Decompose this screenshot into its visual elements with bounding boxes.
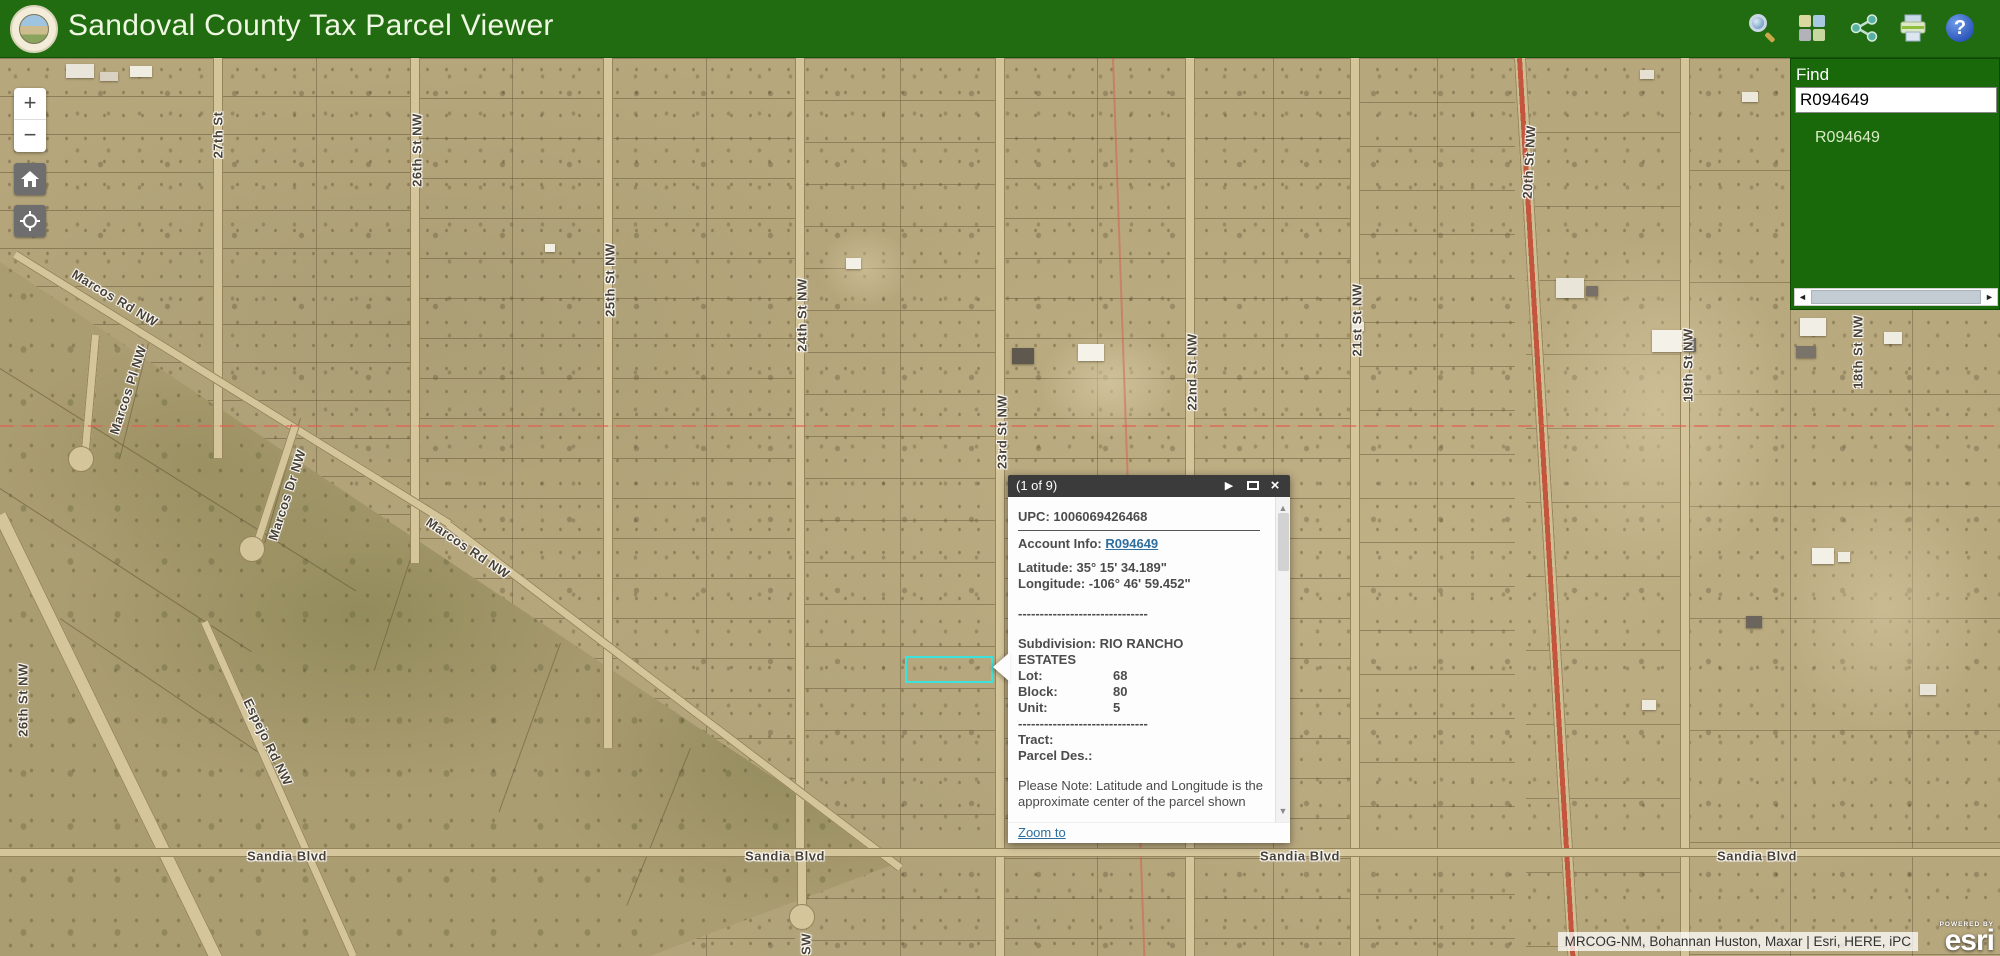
- app-window: 27th St26th St NW25th St NW24th St NW23r…: [0, 0, 2000, 956]
- subdivision-value: Subdivision: RIO RANCHO ESTATES: [1018, 636, 1223, 668]
- road-19th-st: [1680, 58, 1690, 956]
- street-label: Sandia Blvd: [745, 849, 825, 864]
- popup-footer: Zoom to: [1008, 822, 1290, 843]
- maximize-icon: [1247, 481, 1259, 490]
- account-info-row: Account Info: R094649: [1018, 536, 1268, 552]
- street-label: 19th St NW: [1681, 328, 1696, 402]
- building: [1640, 70, 1654, 79]
- unit-row: Unit:5: [1018, 700, 1268, 716]
- scroll-left-arrow[interactable]: ◄: [1795, 289, 1810, 305]
- building: [1796, 346, 1816, 358]
- street-label: 27th St: [211, 112, 226, 159]
- block-label: Block:: [1018, 684, 1113, 700]
- unit-label: Unit:: [1018, 700, 1113, 716]
- cul-de-sac: [239, 536, 265, 562]
- street-label: 23rd St NW: [995, 395, 1010, 469]
- building: [130, 66, 152, 77]
- parcel-line: [900, 58, 901, 956]
- building: [1078, 344, 1104, 361]
- cleared-lot: [1040, 328, 1180, 438]
- zoom-in-button[interactable]: +: [14, 88, 46, 120]
- building: [545, 244, 555, 252]
- locate-icon: [20, 211, 40, 231]
- esri-logo: POWERED BY esri: [1940, 921, 1994, 954]
- scroll-down-arrow[interactable]: ▼: [1276, 803, 1290, 819]
- road-24th-st: [795, 58, 805, 856]
- share-icon[interactable]: [1849, 13, 1879, 43]
- find-result-item[interactable]: R094649: [1815, 129, 1999, 147]
- basemap-gallery-icon[interactable]: [1797, 13, 1827, 43]
- tract-label: Tract:: [1018, 732, 1268, 748]
- next-feature-button[interactable]: ▶: [1220, 475, 1238, 497]
- app-header: Sandoval County Tax Parcel Viewer: [0, 0, 2000, 58]
- print-icon[interactable]: [1898, 13, 1928, 43]
- map-canvas[interactable]: 27th St26th St NW25th St NW24th St NW23r…: [0, 58, 2000, 956]
- building: [846, 258, 861, 269]
- search-icon[interactable]: [1748, 13, 1778, 43]
- building: [1012, 348, 1034, 364]
- zoom-to-link[interactable]: Zoom to: [1018, 825, 1066, 841]
- parcel-line: [1437, 58, 1438, 956]
- building: [1800, 318, 1826, 336]
- esri-brand-text: esri: [1940, 928, 1994, 954]
- street-label: Sandia Blvd: [1260, 849, 1340, 864]
- cleared-lot: [1780, 478, 1990, 738]
- parcel-info-popup: (1 of 9) ▶ × UPC: 1006069426468 Account …: [1008, 475, 1290, 843]
- account-info-label: Account Info:: [1018, 536, 1105, 551]
- street-label: SW: [799, 933, 814, 955]
- block-value: 80: [1113, 684, 1127, 700]
- help-icon[interactable]: ?: [1945, 13, 1975, 43]
- building: [1920, 684, 1936, 695]
- maximize-button[interactable]: [1244, 475, 1262, 497]
- close-button[interactable]: ×: [1266, 475, 1284, 497]
- block-row: Block:80: [1018, 684, 1268, 700]
- find-panel: Find R094649 ◄ ►: [1790, 58, 2000, 310]
- account-info-link[interactable]: R094649: [1105, 536, 1158, 551]
- building: [66, 64, 94, 78]
- unit-value: 5: [1113, 700, 1120, 716]
- scrollbar-thumb[interactable]: [1278, 513, 1289, 571]
- street-label: 18th St NW: [1851, 315, 1866, 389]
- separator-text: ------------------------------: [1018, 716, 1268, 732]
- road-23rd-st: [995, 58, 1005, 956]
- building: [1586, 286, 1598, 296]
- latitude-value: Latitude: 35° 15' 34.189": [1018, 560, 1268, 576]
- popup-header[interactable]: (1 of 9) ▶ ×: [1008, 475, 1290, 497]
- map-attribution: MRCOG-NM, Bohannan Huston, Maxar | Esri,…: [1558, 932, 1918, 951]
- zoom-control: + −: [14, 88, 46, 152]
- street-label: 22nd St NW: [1185, 333, 1200, 410]
- divider: [1018, 530, 1260, 531]
- separator-text: ------------------------------: [1018, 606, 1268, 622]
- parcel-des-label: Parcel Des.:: [1018, 748, 1268, 764]
- building: [1642, 700, 1656, 710]
- find-input[interactable]: [1795, 87, 1997, 113]
- building: [1652, 330, 1682, 352]
- zoom-out-button[interactable]: −: [14, 120, 46, 152]
- cul-de-sac: [789, 904, 815, 930]
- road-21st-st: [1350, 58, 1360, 956]
- street-label: Sandia Blvd: [1717, 849, 1797, 864]
- street-label: 25th St NW: [603, 243, 618, 317]
- longitude-value: Longitude: -106° 46' 59.452": [1018, 576, 1268, 592]
- lot-row: Lot:68: [1018, 668, 1268, 684]
- street-label: 21st St NW: [1350, 284, 1365, 357]
- find-label: Find: [1796, 65, 1999, 85]
- locate-button[interactable]: [14, 205, 46, 237]
- building: [1746, 616, 1762, 628]
- sandoval-county-seal-logo: [10, 5, 58, 53]
- building: [1838, 552, 1850, 562]
- popup-pointer: [993, 652, 1010, 682]
- upc-value: UPC: 1006069426468: [1018, 509, 1268, 525]
- lot-value: 68: [1113, 668, 1127, 684]
- scroll-right-arrow[interactable]: ►: [1982, 289, 1997, 305]
- building: [1812, 548, 1834, 564]
- home-icon: [21, 171, 39, 187]
- selected-parcel-highlight[interactable]: [905, 656, 993, 683]
- home-button[interactable]: [14, 163, 46, 195]
- street-label: 24th St NW: [795, 278, 810, 352]
- street-label: Sandia Blvd: [247, 849, 327, 864]
- find-horizontal-scrollbar: ◄ ►: [1794, 288, 1998, 306]
- street-label: 26th St NW: [410, 113, 425, 187]
- popup-body: UPC: 1006069426468 Account Info: R094649…: [1008, 497, 1290, 843]
- building: [1742, 92, 1758, 102]
- scrollbar-thumb[interactable]: [1811, 290, 1981, 304]
- street-label: 26th St NW: [16, 663, 31, 737]
- page-title: Sandoval County Tax Parcel Viewer: [68, 9, 554, 43]
- building: [100, 72, 118, 81]
- popup-title: (1 of 9): [1016, 478, 1057, 493]
- cul-de-sac: [68, 446, 94, 472]
- popup-scrollbar: ▲ ▼: [1275, 497, 1290, 822]
- building: [1556, 278, 1584, 298]
- building: [1884, 332, 1902, 344]
- note-text: Please Note: Latitude and Longitude is t…: [1018, 778, 1263, 810]
- lot-label: Lot:: [1018, 668, 1113, 684]
- cleared-lot: [820, 228, 910, 308]
